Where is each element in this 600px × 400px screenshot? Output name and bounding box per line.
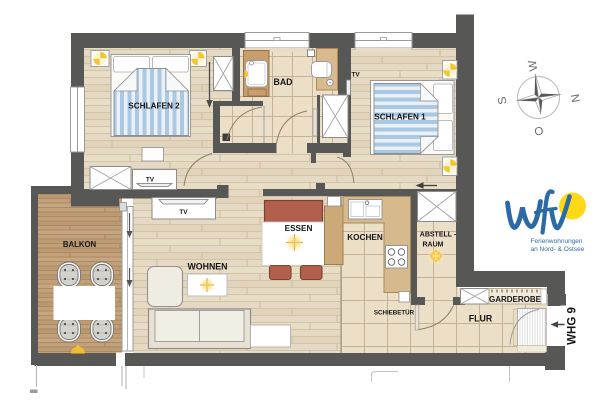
svg-text:KOCHEN: KOCHEN	[347, 233, 383, 242]
svg-text:WOHNEN: WOHNEN	[187, 262, 227, 272]
svg-text:BALKON: BALKON	[63, 240, 97, 249]
svg-text:SCHLAFEN 2: SCHLAFEN 2	[128, 102, 180, 111]
svg-text:TV: TV	[352, 72, 361, 79]
svg-text:SCHIEBETÜR: SCHIEBETÜR	[374, 310, 415, 317]
svg-text:W: W	[527, 59, 541, 72]
svg-text:Ferienwohnungen: Ferienwohnungen	[531, 238, 583, 245]
svg-text:GARDEROBE: GARDEROBE	[489, 295, 542, 304]
svg-text:TV: TV	[179, 209, 188, 216]
svg-text:BAD: BAD	[273, 77, 292, 87]
svg-text:ABSTELL -: ABSTELL -	[420, 232, 457, 239]
svg-text:an Nord- & Ostsee: an Nord- & Ostsee	[531, 246, 585, 253]
svg-text:FLUR: FLUR	[469, 314, 493, 324]
svg-text:ESSEN: ESSEN	[285, 224, 313, 233]
svg-text:WHG 9: WHG 9	[567, 307, 579, 345]
svg-text:RAUM: RAUM	[423, 242, 444, 249]
svg-text:TV: TV	[146, 177, 155, 184]
svg-text:SCHLAFEN 1: SCHLAFEN 1	[374, 113, 426, 122]
